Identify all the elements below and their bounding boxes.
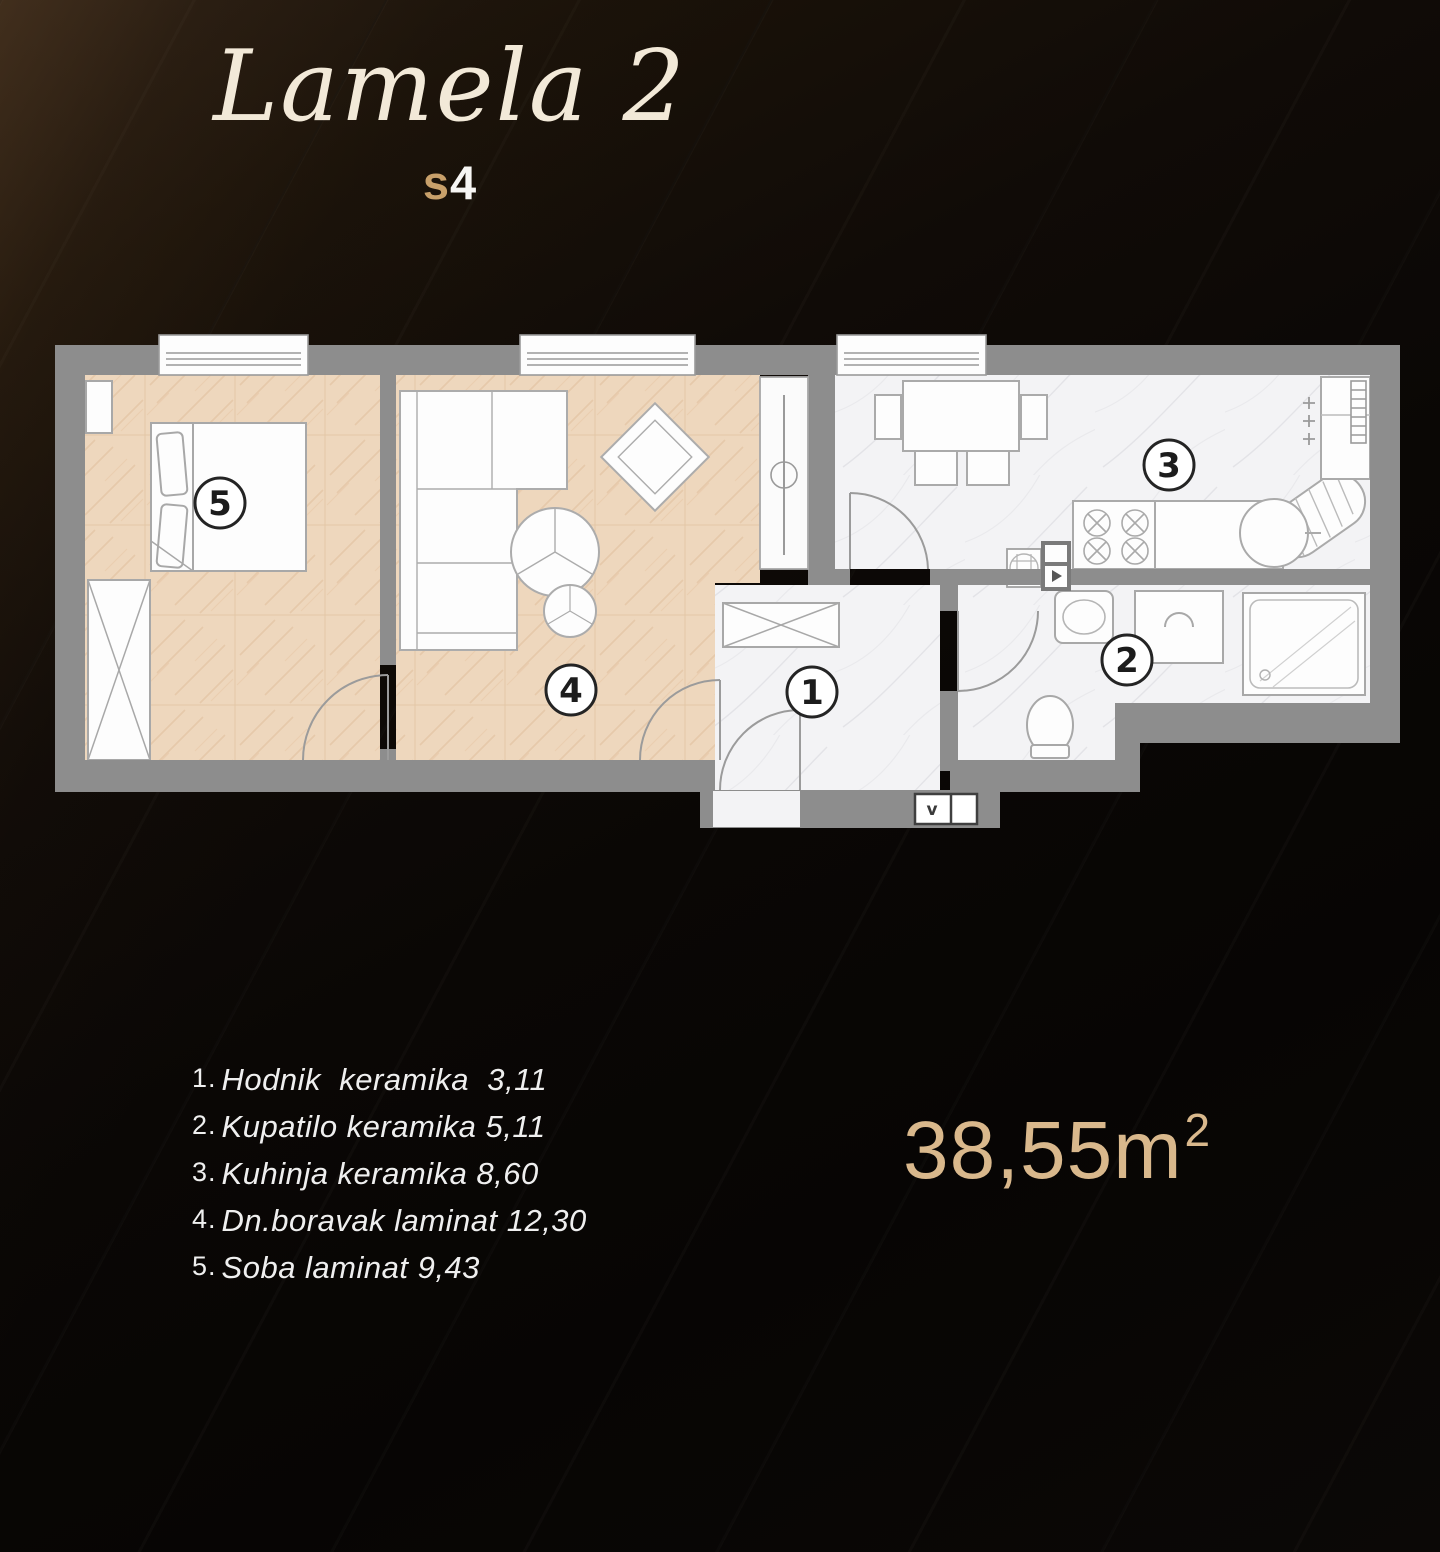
legend-item-bathroom: 2.Kupatilo keramika 5,11 (192, 1109, 587, 1156)
room-number-bedroom: 5 (195, 478, 245, 528)
room-number-kitchen: 3 (1144, 440, 1194, 490)
legend-item-number: 4. (192, 1204, 217, 1235)
total-area: 38,55m2 (903, 1104, 1211, 1198)
svg-text:5: 5 (208, 484, 232, 524)
page-title: Lamela 2 (150, 26, 750, 149)
windows (159, 335, 986, 375)
header: Lamela 2 s4 (150, 26, 750, 210)
legend-item-hallway: 1.Hodnik keramika 3,11 (192, 1062, 587, 1109)
vent-label: v (926, 800, 937, 820)
living-room-window (520, 335, 695, 375)
svg-text:3: 3 (1157, 446, 1181, 486)
appliance-arrow-icon (1041, 541, 1071, 591)
legend-item-label: Soba laminat 9,43 (222, 1250, 480, 1286)
bathroom-sink (1055, 591, 1113, 643)
room-legend: 1.Hodnik keramika 3,11 2.Kupatilo kerami… (192, 1062, 587, 1297)
radiator-icon (1351, 381, 1366, 443)
floor-plan-svg: v 5 4 1 2 3 (55, 333, 1400, 830)
legend-item-label: Kuhinja keramika 8,60 (222, 1156, 539, 1192)
room-number-hallway: 1 (787, 667, 837, 717)
legend-item-label: Hodnik keramika 3,11 (222, 1062, 548, 1098)
bedroom-wardrobe (88, 580, 150, 760)
room-number-living-room: 4 (546, 665, 596, 715)
unit-label: s4 (150, 155, 750, 210)
nightstand (86, 381, 112, 433)
legend-item-bedroom: 5.Soba laminat 9,43 (192, 1250, 587, 1297)
floor-plan: v 5 4 1 2 3 (55, 333, 1400, 830)
total-area-superscript: 2 (1185, 1104, 1212, 1156)
legend-item-label: Dn.boravak laminat 12,30 (222, 1203, 587, 1239)
glass-door (760, 377, 808, 569)
svg-text:1: 1 (800, 673, 824, 713)
room-number-bathroom: 2 (1102, 635, 1152, 685)
bedroom-window (159, 335, 308, 375)
kitchen-window (837, 335, 986, 375)
hallway-wardrobe (723, 603, 839, 647)
vent-box: v (915, 794, 977, 824)
svg-text:2: 2 (1115, 641, 1139, 681)
entry-threshold (713, 791, 800, 827)
toilet (1027, 696, 1073, 758)
unit-number: 4 (450, 156, 477, 209)
svg-text:4: 4 (559, 671, 583, 711)
legend-item-label: Kupatilo keramika 5,11 (222, 1109, 546, 1145)
legend-item-number: 5. (192, 1251, 217, 1282)
legend-item-living-room: 4.Dn.boravak laminat 12,30 (192, 1203, 587, 1250)
shower (1243, 593, 1365, 695)
total-area-value: 38,55m (903, 1105, 1183, 1196)
unit-prefix: s (423, 156, 450, 209)
legend-item-number: 3. (192, 1157, 217, 1188)
legend-item-number: 2. (192, 1110, 217, 1141)
legend-item-number: 1. (192, 1063, 217, 1094)
legend-item-kitchen: 3.Kuhinja keramika 8,60 (192, 1156, 587, 1203)
